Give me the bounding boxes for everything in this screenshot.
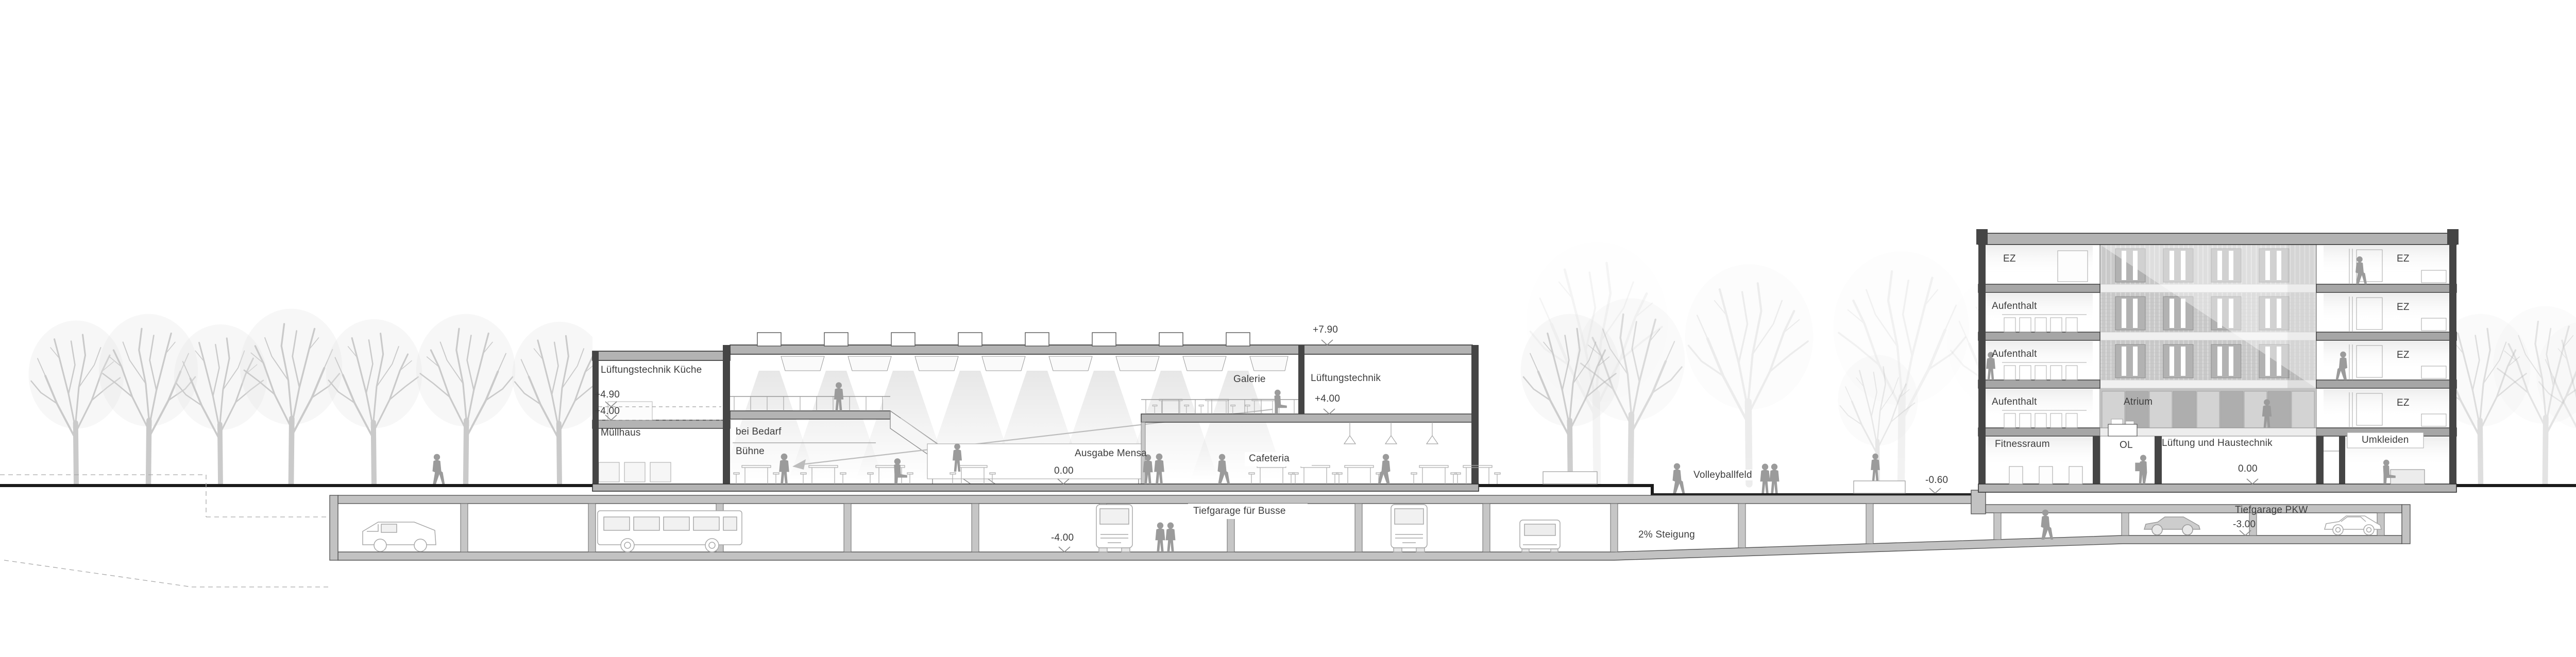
section-drawing-canvas: Lüftungstechnik Küche +4.90 +4.00 Müllha…: [0, 0, 2576, 657]
label-slope: 2% Steigung: [1638, 529, 1695, 540]
label-stage-1: bei Bedarf: [736, 426, 782, 437]
label-atrium: Atrium: [2124, 396, 2153, 407]
bus-front-2: [1391, 505, 1427, 552]
trash-house-doors: [599, 462, 671, 482]
garage-right-wall: [2402, 505, 2410, 544]
label-level-m300: -3.00: [2233, 519, 2256, 530]
label-f1-left: Aufenthalt: [1992, 396, 2037, 407]
garage-left-wall: [330, 495, 338, 560]
label-f2-right: EZ: [2397, 350, 2410, 360]
garage-ceiling-slab: [338, 495, 1973, 504]
planter: [1543, 472, 1597, 484]
hidden-terrain-lines: [0, 475, 330, 587]
label-vent: Lüftungstechnik: [1311, 373, 1381, 384]
label-level-0-hall: 0.00: [1054, 465, 1074, 476]
label-cafeteria: Cafeteria: [1249, 453, 1290, 464]
label-f2-left: Aufenthalt: [1992, 349, 2037, 359]
label-serving: Ausgabe Mensa: [1075, 448, 1147, 459]
bus-front: [1096, 505, 1132, 552]
section-linework: [0, 0, 2576, 657]
trees-left: [29, 309, 607, 484]
label-gallery: Galerie: [1233, 374, 1266, 385]
label-level-0-tower: 0.00: [2238, 463, 2258, 474]
label-ol: OL: [2120, 440, 2133, 451]
galerie-floor: [1141, 414, 1472, 422]
label-level-m060: -0.60: [1924, 475, 1950, 486]
tower-ground-slab: [1978, 484, 2456, 492]
ground-line-right: [2456, 484, 2576, 487]
tower-right-wall: [2449, 233, 2456, 492]
garage-step-wall: [1971, 490, 1986, 514]
residence-building: [1976, 229, 2459, 492]
label-level-400-hall: +4.00: [1315, 393, 1340, 404]
label-f4-left: EZ: [2003, 253, 2016, 264]
underground-garage: [330, 490, 2410, 561]
label-stage-2: Bühne: [736, 446, 765, 457]
tower-roof: [1978, 233, 2456, 245]
label-level-400-annex: +4.00: [595, 406, 620, 417]
label-f3-left: Aufenthalt: [1992, 301, 2037, 312]
label-f4-right: EZ: [2397, 253, 2410, 264]
label-level-m400: -4.00: [1051, 532, 1074, 543]
label-kitchen-vent: Lüftungstechnik Küche: [601, 365, 702, 375]
mensa-ground-slab: [592, 484, 1479, 491]
label-garage-bus: Tiefgarage für Busse: [1193, 506, 1286, 516]
label-level-790: +7.90: [1313, 324, 1338, 335]
annex-roof: [592, 351, 730, 360]
label-tech: Lüftung und Haustechnik: [2162, 438, 2273, 448]
changing-bench: [2391, 470, 2425, 484]
hall-roof: [730, 345, 1472, 354]
gallery-floor: [730, 411, 890, 419]
label-fitness: Fitnessraum: [1995, 439, 2050, 449]
label-changing: Umkleiden: [2362, 435, 2409, 445]
mensa-building: [592, 333, 1500, 491]
van-rear: [1520, 520, 1560, 552]
atrium-level: [2100, 388, 2316, 428]
skylight-notch: [2108, 424, 2137, 436]
tower-left-wall: [1978, 233, 1986, 492]
label-f1-right: EZ: [2397, 397, 2410, 408]
label-garage-cars: Tiefgarage PKW: [2235, 505, 2308, 515]
label-trash-house: Müllhaus: [601, 427, 641, 438]
label-volleyball: Volleyballfeld: [1692, 470, 1754, 480]
referee-platform: [1854, 481, 1905, 493]
label-level-490: +4.90: [595, 389, 620, 400]
label-f3-right: EZ: [2397, 302, 2410, 313]
